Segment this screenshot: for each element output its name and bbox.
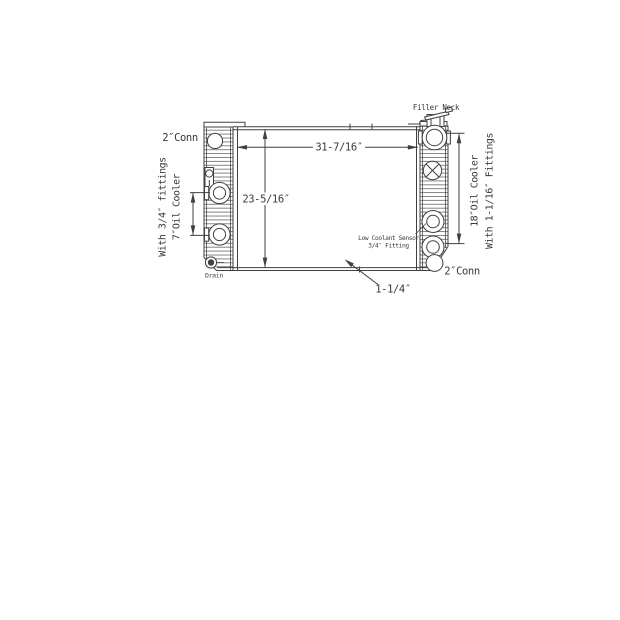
right-fittings-label: With 1-1/16″ Fittings (485, 133, 496, 249)
right-oil-cooler-fitting-top (422, 211, 444, 233)
core-thickness-label: 1-1/4″ (375, 284, 411, 296)
arrowhead-left (237, 145, 247, 150)
right-tank (408, 107, 453, 271)
radiator-technical-drawing: 31-7/16″ 23-5/16″ 1-1/4″ Low Coolant Sen… (0, 0, 620, 620)
left-tank (204, 122, 245, 270)
bottom-right-connection-port (426, 255, 443, 272)
core-bottom-edge (217, 268, 433, 271)
height-dimension-label: 23-5/16″ (242, 194, 289, 206)
conn-bottom-right-label: 2″Conn (444, 266, 480, 278)
top-left-connection-port (207, 133, 222, 148)
left-tank-top-bracket (204, 122, 245, 127)
low-coolant-sensor-callout: Low Coolant Sensor 3/4″ Fitting (358, 224, 426, 250)
radiator-drawing-page: 31-7/16″ 23-5/16″ 1-1/4″ Low Coolant Sen… (0, 0, 620, 620)
filler-neck-label: Filler Neck (413, 103, 460, 112)
core-thickness-callout: 1-1/4″ (343, 257, 411, 295)
left-oil-cooler-label: 7″Oil Cooler (172, 173, 183, 240)
drain-label: Drain (205, 272, 223, 280)
height-dimension: 23-5/16″ (240, 129, 292, 268)
right-oil-cooler-dimension (446, 133, 465, 243)
low-coolant-sensor-label-line2: 3/4″ Fitting (368, 242, 409, 249)
conn-top-left-label: 2″Conn (162, 132, 198, 144)
core-top-edge (233, 127, 420, 130)
width-dimension-label: 31-7/16″ (315, 142, 362, 154)
low-coolant-sensor-label-line1: Low Coolant Sensor (358, 235, 419, 242)
right-oil-cooler-label: 18″Oil Cooler (470, 155, 481, 227)
arrowhead-top (263, 129, 268, 139)
crossed-plug-fitting (423, 161, 441, 179)
left-fittings-label: With 3/4″ fittings (158, 157, 169, 257)
width-dimension: 31-7/16″ (237, 141, 418, 154)
arrowhead-bottom (263, 258, 268, 268)
